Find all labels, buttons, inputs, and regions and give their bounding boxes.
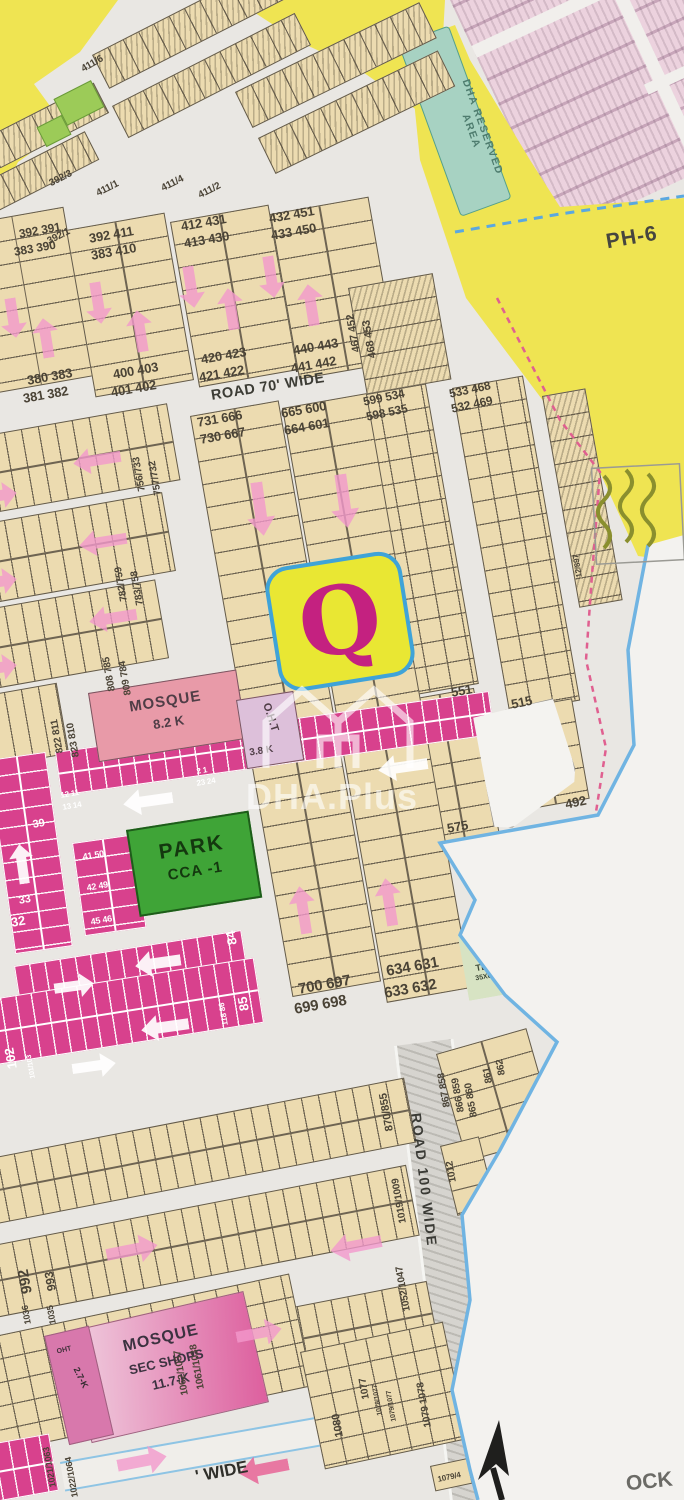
plot-number-label: 411/4	[160, 174, 185, 194]
plot-number-label: 32	[10, 914, 26, 929]
direction-arrow-icon	[71, 1051, 118, 1081]
plot-number-label: 411/1	[95, 179, 120, 199]
plot-number-label: 84	[224, 930, 239, 946]
block-letter: Q	[292, 569, 388, 675]
oht-main-box: O.H.T 3.8 K	[236, 691, 304, 769]
plot-number-label: 39	[32, 818, 46, 831]
plot-number-label: 1035	[46, 1304, 58, 1325]
plot-number-label: 33	[18, 894, 32, 907]
direction-arrow-icon	[121, 785, 174, 818]
plot-number-label: 23 24	[196, 777, 216, 788]
block-q-badge: Q	[262, 548, 418, 694]
plot-number-label: 102	[2, 1047, 18, 1070]
plot-number-label: 85	[236, 996, 251, 1012]
plot-number-label: 992	[16, 1268, 35, 1295]
plot-number-label: 551	[450, 682, 473, 698]
plot-map: DHA RESERVED AREA MOSQUE 8.2 K O.H.T 3.8…	[0, 0, 684, 1500]
plot-number-label: 13 14	[62, 801, 82, 812]
plot-number-label: 993	[43, 1271, 58, 1292]
plot-number-label: 411/2	[197, 181, 222, 201]
corner-block-text: OCK	[625, 1468, 674, 1497]
plot-number-label: 575	[446, 818, 469, 834]
tbs-name: TBS	[475, 960, 494, 973]
park-cca1-box: PARK CCA -1	[126, 811, 262, 917]
oht-sector-area: 2.7-K	[72, 1366, 91, 1390]
oht-sector-name: OHT	[56, 1345, 72, 1355]
oht-main-name: O.H.T	[260, 701, 280, 733]
oht-main-area: 3.8 K	[249, 744, 274, 759]
plot-number-label: 12 11	[60, 789, 80, 800]
tbs-size: 35X65	[475, 972, 496, 982]
plot-number-label: 492	[564, 794, 587, 811]
